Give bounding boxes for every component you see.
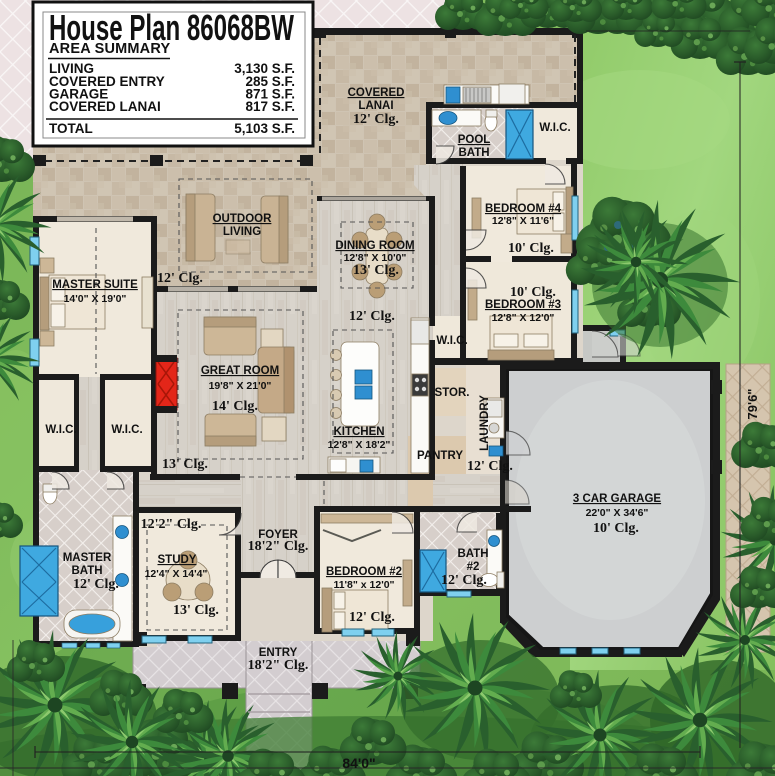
svg-text:#2: #2 — [467, 561, 480, 573]
svg-text:COVERED: COVERED — [348, 87, 405, 99]
svg-text:W.I.C.: W.I.C. — [436, 335, 467, 347]
svg-text:KITCHEN: KITCHEN — [333, 426, 384, 438]
svg-text:10' Clg.: 10' Clg. — [508, 241, 554, 256]
svg-text:MASTER: MASTER — [63, 552, 112, 564]
svg-text:COVERED LANAI: COVERED LANAI — [49, 99, 161, 114]
svg-text:BEDROOM #4: BEDROOM #4 — [485, 203, 562, 215]
svg-text:13' Clg.: 13' Clg. — [162, 457, 208, 472]
svg-text:13' Clg.: 13' Clg. — [173, 603, 219, 618]
svg-text:STOR.: STOR. — [435, 387, 470, 399]
svg-text:GREAT ROOM: GREAT ROOM — [201, 365, 279, 377]
svg-text:22'0" X 34'6": 22'0" X 34'6" — [586, 507, 649, 519]
svg-text:10' Clg.: 10' Clg. — [593, 521, 639, 536]
svg-text:OUTDOOR: OUTDOOR — [213, 213, 272, 225]
svg-text:PANTRY: PANTRY — [417, 450, 463, 462]
svg-text:84'0": 84'0" — [342, 755, 375, 771]
svg-text:14' Clg.: 14' Clg. — [212, 399, 258, 414]
svg-text:18'2" Clg.: 18'2" Clg. — [248, 539, 309, 554]
svg-text:12'8" X 12'0": 12'8" X 12'0" — [492, 312, 555, 324]
svg-text:AREA SUMMARY: AREA SUMMARY — [49, 41, 170, 57]
svg-text:BEDROOM #3: BEDROOM #3 — [485, 299, 561, 311]
svg-text:POOL: POOL — [458, 134, 491, 146]
svg-text:BEDROOM #2: BEDROOM #2 — [326, 566, 402, 578]
svg-text:W.I.C.: W.I.C. — [111, 424, 142, 436]
svg-text:DINING ROOM: DINING ROOM — [335, 240, 414, 252]
svg-text:5,103 S.F.: 5,103 S.F. — [234, 121, 295, 136]
svg-text:12' Clg.: 12' Clg. — [349, 309, 395, 324]
svg-text:12' Clg.: 12' Clg. — [349, 610, 395, 625]
svg-text:LANAI: LANAI — [358, 100, 393, 112]
svg-text:12'2" Clg.: 12'2" Clg. — [141, 517, 202, 532]
svg-text:12'4" X 14'4": 12'4" X 14'4" — [145, 568, 208, 580]
svg-text:13' Clg.: 13' Clg. — [353, 263, 399, 278]
svg-text:W.I.C.: W.I.C. — [45, 424, 76, 436]
svg-text:12' Clg.: 12' Clg. — [467, 459, 513, 474]
svg-text:12' Clg.: 12' Clg. — [441, 573, 487, 588]
svg-text:STUDY: STUDY — [158, 554, 197, 566]
svg-text:TOTAL: TOTAL — [49, 121, 93, 136]
svg-text:79'6": 79'6" — [745, 389, 760, 420]
svg-text:12' Clg.: 12' Clg. — [73, 577, 119, 592]
svg-text:W.I.C.: W.I.C. — [539, 122, 570, 134]
svg-text:MASTER SUITE: MASTER SUITE — [52, 279, 138, 291]
svg-text:19'8" X 21'0": 19'8" X 21'0" — [209, 380, 272, 392]
svg-text:LIVING: LIVING — [223, 226, 261, 238]
svg-text:12' Clg.: 12' Clg. — [353, 112, 399, 127]
svg-text:BATH: BATH — [71, 565, 102, 577]
svg-text:817 S.F.: 817 S.F. — [245, 99, 295, 114]
svg-text:14'0" X 19'0": 14'0" X 19'0" — [64, 293, 127, 305]
svg-text:LAUNDRY: LAUNDRY — [479, 395, 491, 451]
svg-text:BATH: BATH — [458, 147, 489, 159]
svg-text:12'8" X 11'6": 12'8" X 11'6" — [492, 215, 554, 227]
svg-text:BATH: BATH — [457, 548, 488, 560]
svg-text:3 CAR GARAGE: 3 CAR GARAGE — [573, 493, 662, 505]
svg-text:18'2" Clg.: 18'2" Clg. — [248, 658, 309, 673]
svg-text:12'8" X 18'2": 12'8" X 18'2" — [328, 439, 391, 451]
svg-text:11'8" x 12'0": 11'8" x 12'0" — [333, 579, 394, 591]
svg-text:12' Clg.: 12' Clg. — [157, 271, 203, 286]
svg-text:10' Clg.: 10' Clg. — [510, 285, 556, 300]
